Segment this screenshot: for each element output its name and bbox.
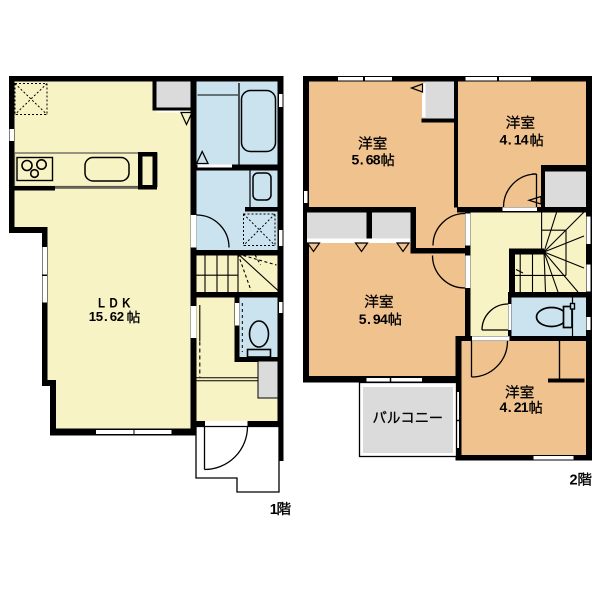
svg-text:2: 2 xyxy=(570,473,578,489)
svg-text:15.62: 15.62 xyxy=(89,309,124,324)
svg-text:4.21: 4.21 xyxy=(500,399,529,415)
svg-text:5.94: 5.94 xyxy=(359,311,388,327)
svg-text:5.68: 5.68 xyxy=(352,152,381,168)
svg-text:1: 1 xyxy=(270,502,278,518)
svg-text:4.14: 4.14 xyxy=(500,132,529,148)
